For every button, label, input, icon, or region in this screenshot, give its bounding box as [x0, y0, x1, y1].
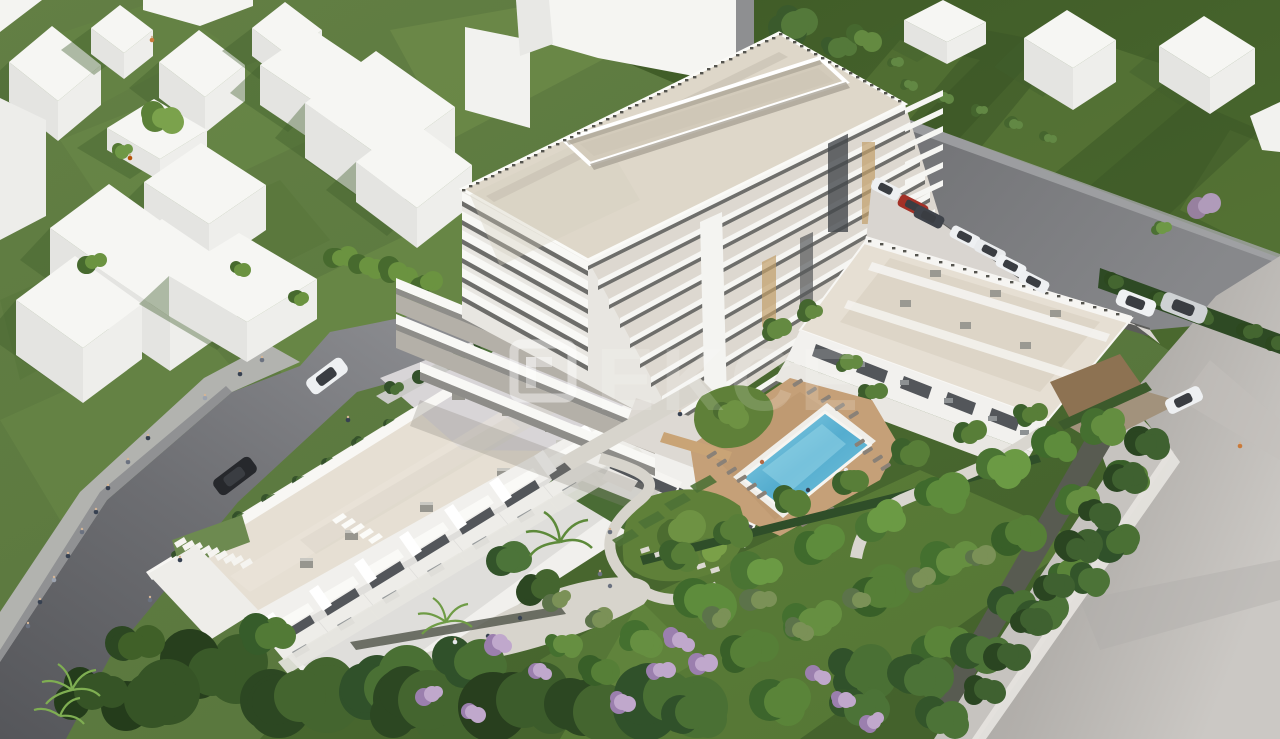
- svg-text:EKCE: EKCE: [596, 330, 865, 429]
